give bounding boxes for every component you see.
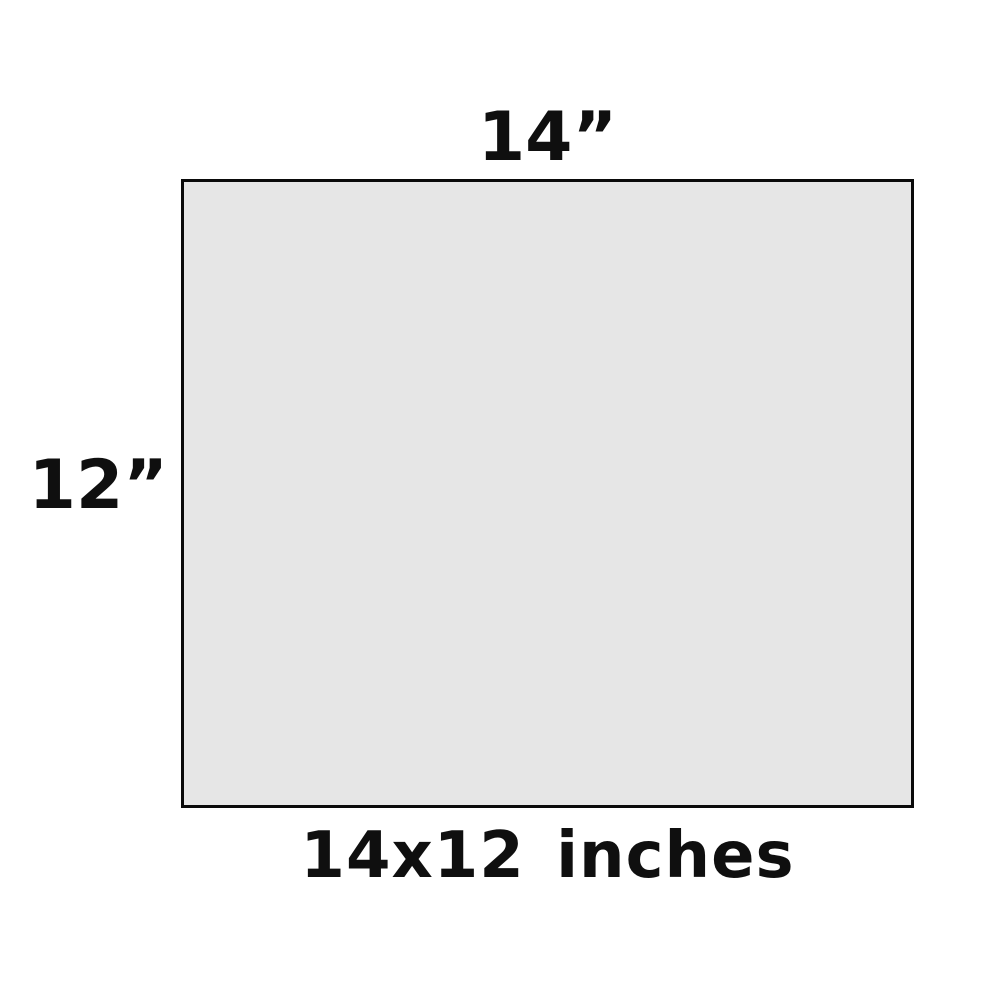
dimension-diagram: 14” 12” 14x12 inches (0, 0, 1000, 1000)
rectangle-shape (181, 179, 914, 808)
caption-label: 14x12 inches (181, 824, 914, 888)
height-dimension-label: 12” (0, 452, 168, 520)
width-dimension-label: 14” (181, 104, 914, 172)
